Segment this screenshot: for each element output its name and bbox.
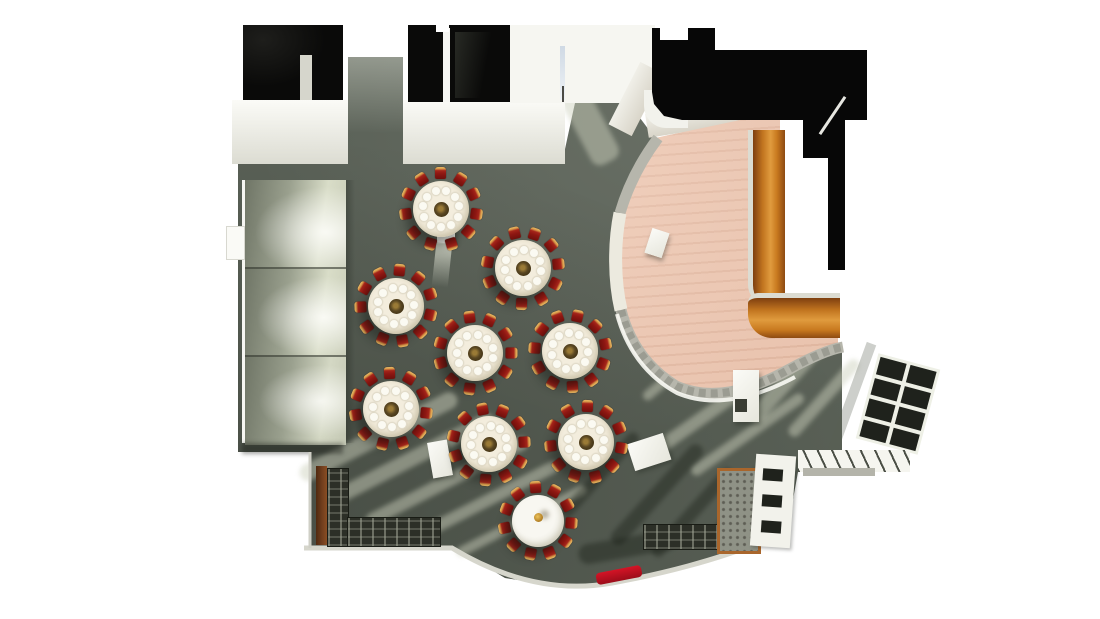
banquet-chair	[598, 337, 612, 350]
place-setting	[564, 444, 574, 454]
banquet-chair	[498, 468, 513, 484]
banquet-chair	[499, 502, 514, 516]
banquet-chair	[420, 407, 433, 419]
banquet-chair	[507, 226, 521, 240]
place-setting	[419, 212, 429, 222]
banquet-chair	[519, 436, 532, 448]
banquet-chair	[544, 440, 557, 452]
place-setting	[426, 220, 436, 230]
place-setting	[397, 419, 407, 429]
place-setting	[591, 453, 601, 463]
floral-centerpiece	[468, 346, 483, 361]
place-setting	[486, 421, 496, 431]
banquet-chair	[552, 258, 565, 270]
banquet-chair	[588, 470, 602, 484]
place-setting	[466, 440, 476, 450]
banquet-chair	[481, 255, 495, 268]
place-setting	[388, 283, 398, 293]
banquet-chair	[543, 545, 558, 560]
banquet-chair	[375, 332, 390, 347]
banquet-chair	[482, 274, 497, 289]
banquet-chair	[530, 481, 542, 494]
banquet-chair	[447, 429, 461, 442]
banquet-chair	[482, 378, 497, 393]
place-setting	[519, 245, 529, 255]
banquet-chair	[423, 287, 438, 301]
floral-centerpiece	[516, 261, 531, 276]
place-setting	[473, 366, 483, 376]
banquet-chair	[568, 469, 582, 484]
banquet-chair	[415, 385, 431, 400]
place-setting	[564, 328, 574, 338]
place-setting	[488, 343, 498, 353]
banquet-chair	[424, 236, 438, 251]
banquet-chair	[524, 547, 537, 561]
place-setting	[563, 434, 573, 444]
floral-centerpiece	[434, 202, 449, 217]
banquet-chair	[528, 342, 541, 354]
banquet-chair	[505, 348, 517, 359]
banquet-chair	[482, 313, 497, 328]
place-setting	[509, 247, 519, 257]
banquet-chair	[615, 442, 629, 455]
floral-centerpiece	[389, 299, 404, 314]
place-setting	[469, 450, 479, 460]
banquet-chair	[550, 310, 564, 325]
banquet-chair	[395, 436, 409, 451]
place-setting	[500, 265, 510, 275]
banquet-chair	[433, 356, 448, 370]
place-setting	[532, 276, 542, 286]
banquet-chair	[560, 497, 576, 512]
banquet-chair	[375, 437, 389, 451]
place-setting	[488, 457, 498, 467]
banquet-chair	[567, 381, 579, 394]
floral-centerpiece	[563, 344, 578, 359]
gold-centerpiece	[534, 513, 543, 522]
banquet-chair	[497, 365, 513, 381]
banquet-chair	[533, 291, 549, 307]
banquet-chair	[464, 382, 477, 395]
banquet-chair	[464, 311, 477, 324]
place-setting	[580, 357, 590, 367]
place-setting	[422, 192, 432, 202]
banquet-chair	[557, 533, 573, 549]
floral-centerpiece	[579, 435, 594, 450]
banquet-chair	[512, 454, 528, 470]
banquet-chair	[470, 208, 483, 221]
place-setting	[552, 359, 562, 369]
banquet-chair	[354, 302, 366, 313]
banquet-chair	[435, 167, 446, 179]
banquet-chair	[475, 402, 488, 416]
banquet-chair	[480, 473, 492, 486]
banquet-chair	[571, 309, 584, 323]
banquet-chair	[399, 208, 412, 221]
banquet-chair	[596, 356, 611, 371]
place-setting	[404, 401, 414, 411]
banquet-chair	[433, 336, 448, 350]
banquet-chair	[448, 449, 463, 463]
place-setting	[561, 364, 571, 374]
banquet-chair	[466, 186, 482, 201]
floorplan-render	[0, 0, 1100, 619]
place-setting	[368, 402, 378, 412]
banquet-chair	[384, 367, 395, 379]
place-setting	[431, 186, 441, 196]
tables-layer	[0, 0, 1100, 619]
banquet-chair	[394, 264, 406, 277]
place-setting	[571, 452, 581, 462]
place-setting	[512, 281, 522, 291]
banquet-chair	[545, 375, 560, 391]
banquet-chair	[612, 421, 627, 436]
floral-centerpiece	[384, 402, 399, 417]
banquet-chair	[396, 334, 409, 348]
place-setting	[400, 391, 410, 401]
banquet-chair	[424, 308, 438, 322]
place-setting	[504, 275, 514, 285]
place-setting	[535, 256, 545, 266]
banquet-chair	[566, 517, 579, 529]
floral-centerpiece	[482, 437, 497, 452]
place-setting	[453, 212, 463, 222]
place-setting	[523, 281, 533, 291]
place-setting	[547, 350, 557, 360]
place-setting	[378, 288, 388, 298]
place-setting	[452, 348, 462, 358]
place-setting	[373, 297, 383, 307]
banquet-chair	[349, 409, 363, 422]
banquet-chair	[581, 400, 592, 412]
banquet-chair	[444, 236, 458, 251]
banquet-chair	[527, 226, 541, 241]
banquet-chair	[547, 277, 563, 292]
banquet-chair	[498, 522, 512, 535]
place-setting	[446, 220, 456, 230]
place-setting	[377, 420, 387, 430]
banquet-chair	[495, 403, 510, 418]
banquet-chair	[583, 372, 599, 388]
banquet-chair	[516, 298, 527, 310]
banquet-chair	[411, 423, 427, 439]
